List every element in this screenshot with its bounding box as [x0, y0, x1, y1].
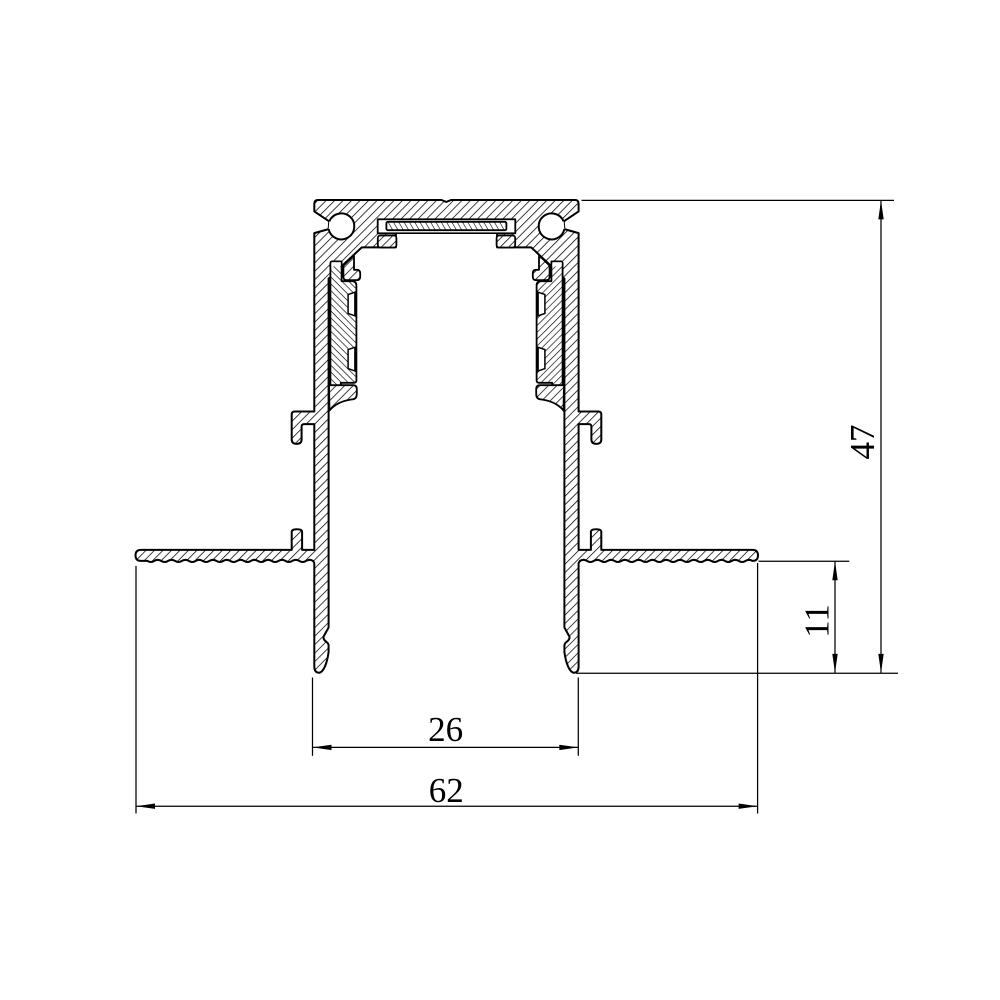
- svg-text:11: 11: [797, 604, 836, 638]
- svg-text:62: 62: [429, 771, 464, 810]
- svg-text:26: 26: [428, 710, 463, 749]
- svg-text:47: 47: [843, 425, 882, 460]
